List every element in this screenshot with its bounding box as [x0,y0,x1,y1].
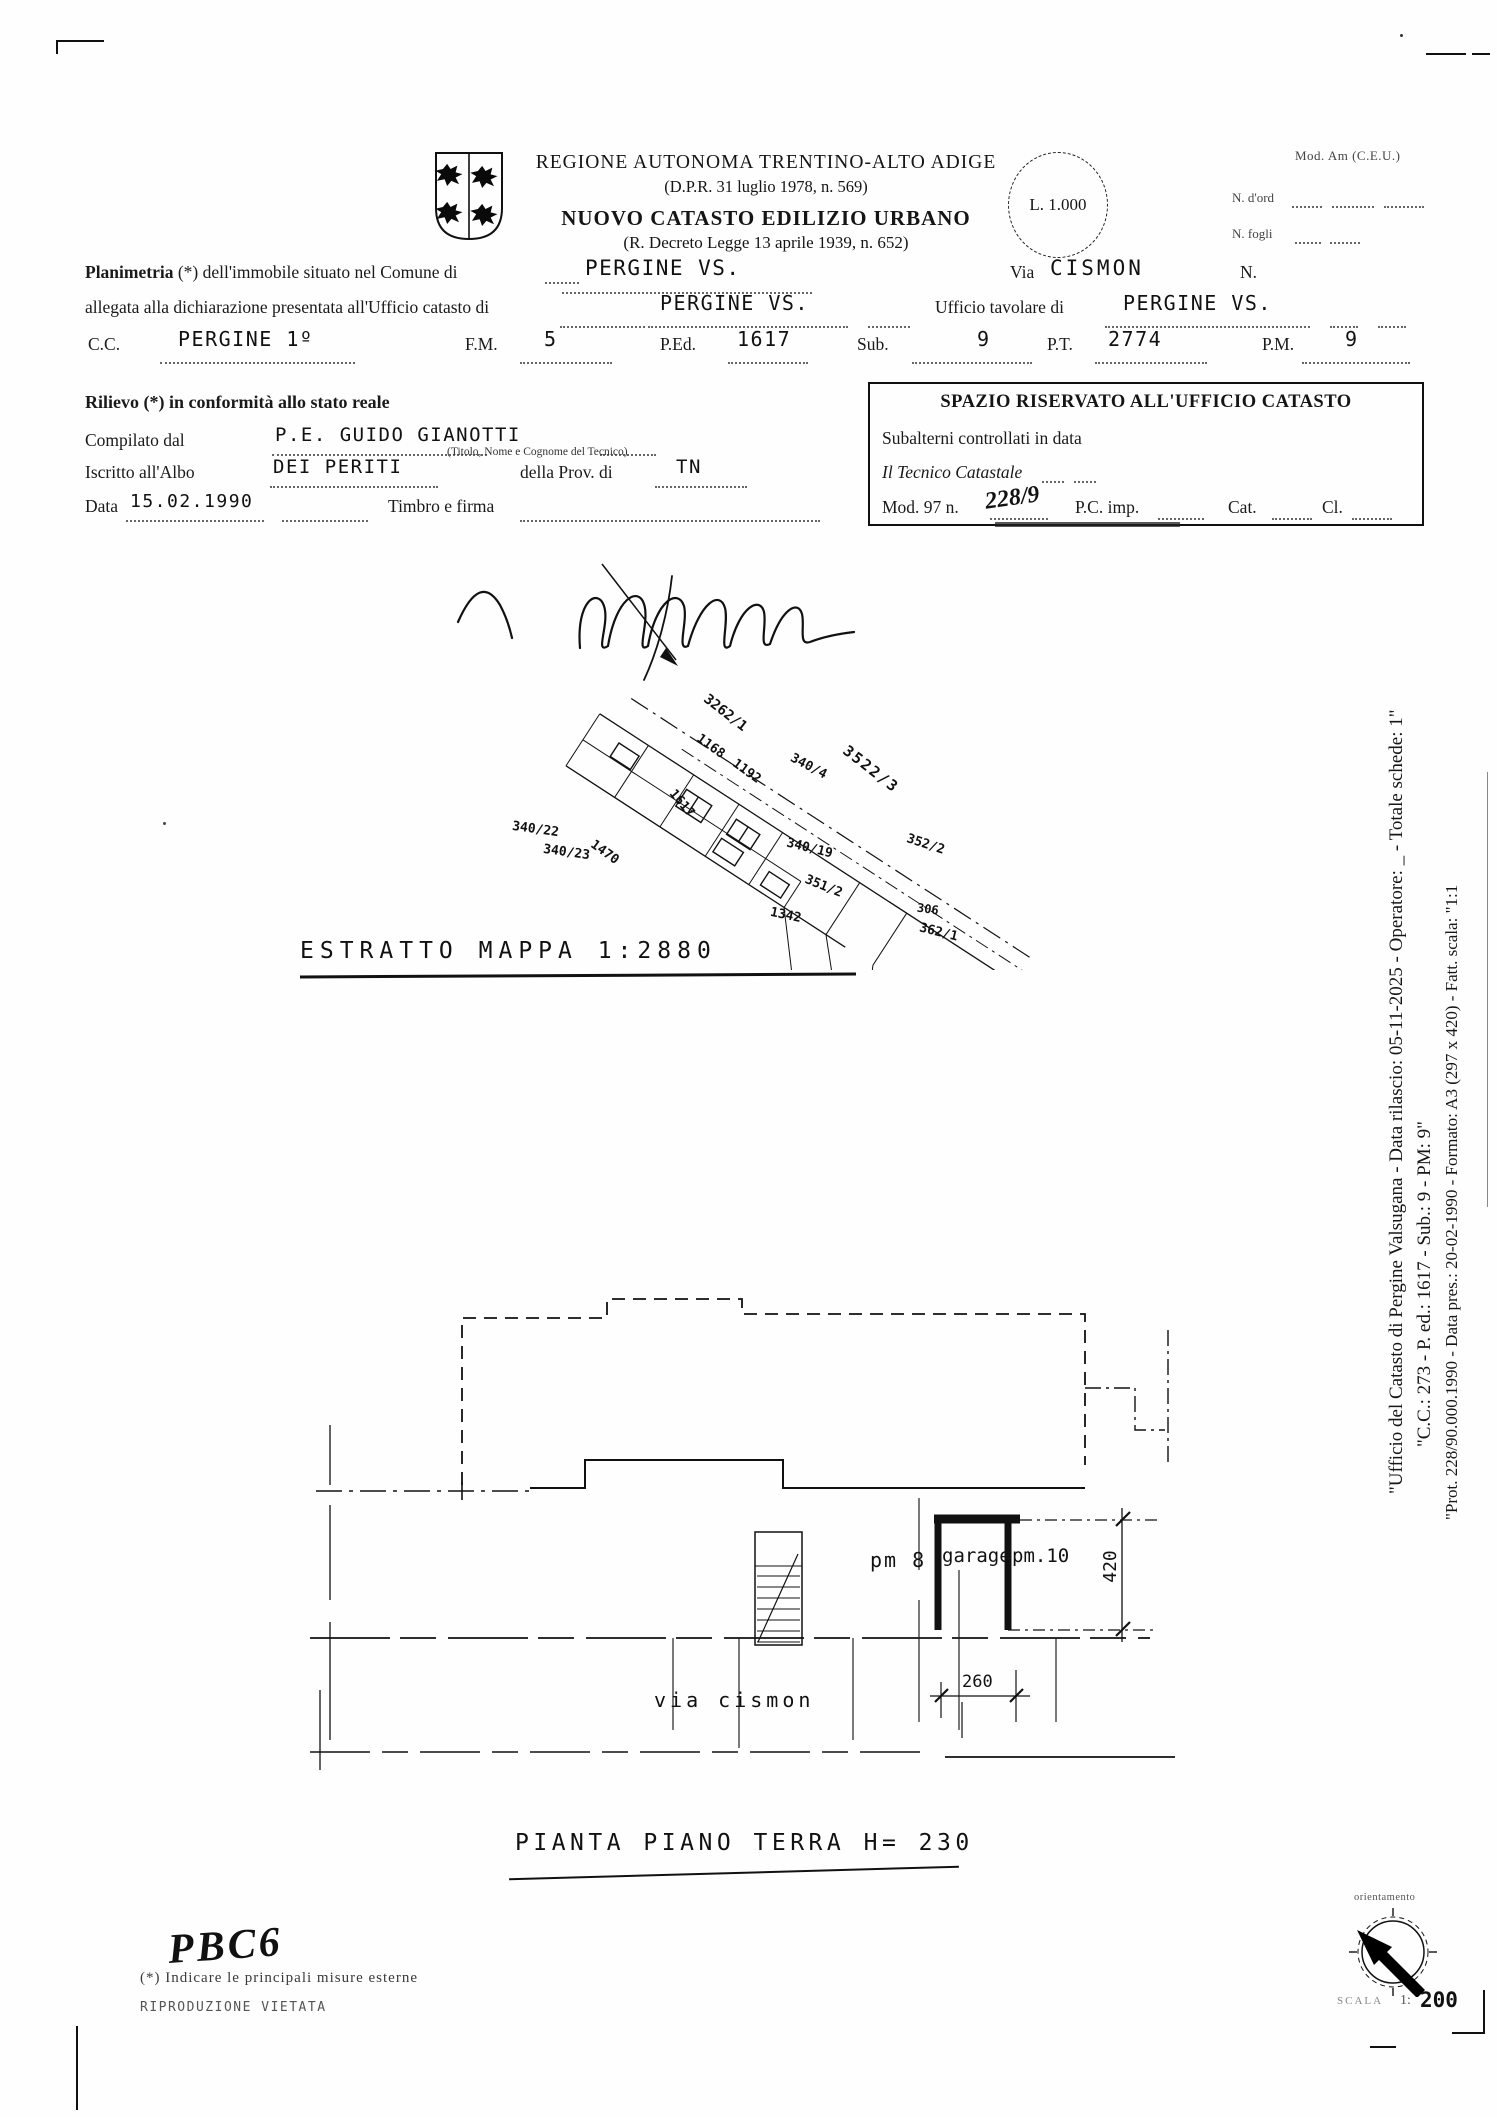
plan-label-pm8: pm 8 [870,1548,926,1572]
dotted-leader [655,484,747,488]
compilato-label: Compilato dal [85,430,185,451]
sub-label: Sub. [857,334,889,355]
corner-mark-bottom-dash [1370,2046,1396,2048]
ped-value: 1617 [737,327,791,351]
data-label: Data [85,496,118,517]
corner-mark-top-left [56,40,104,54]
tavolare-value: PERGINE VS. [1123,291,1272,315]
fm-label: F.M. [465,334,498,355]
n-ord-label: N. d'ord [1232,190,1274,206]
riproduzione-label: RIPRODUZIONE VIETATA [140,2000,327,2015]
sidebar-issue-line: "Ufficio del Catasto di Pergine Valsugan… [1386,709,1408,1494]
dotted-leader [1074,479,1096,483]
dotted-leader [728,360,808,364]
mod-am-label: Mod. Am (C.E.U.) [1295,148,1401,164]
pt-label: P.T. [1047,334,1073,355]
dotted-leader [1292,204,1322,208]
dotted-leader [1378,324,1406,328]
pm-value: 9 [1345,327,1359,351]
cl-label: Cl. [1322,497,1343,518]
plan-title-underline [509,1866,959,1881]
dotted-leader [520,518,820,522]
dotted-leader [1330,240,1360,244]
planimetria-label: Planimetria [85,262,173,282]
coat-of-arms [433,150,505,242]
via-label: Via [1010,262,1034,283]
scala-label: SCALA [1337,1995,1383,2007]
corner-mark-bottom-left [76,2026,78,2110]
map-extract-drawing [440,640,1080,970]
dotted-leader [545,280,579,284]
tecnico-caption: (Titolo, Nome e Cognome del Tecnico) [447,446,628,458]
dotted-leader [520,360,612,364]
cc-value: PERGINE 1º [178,327,313,351]
corner-mark-bottom-right-h [1452,2032,1485,2034]
dotted-leader [1272,516,1312,520]
dotted-leader [912,360,1032,364]
catasto-title: NUOVO CATASTO EDILIZIO URBANO [520,206,1012,231]
header-titles: REGIONE AUTONOMA TRENTINO-ALTO ADIGE (D.… [520,152,1012,253]
corner-mark-top-right-2 [1472,53,1490,55]
tecnico-catastale-label: Il Tecnico Catastale [882,462,1022,483]
right-margin-line [1487,772,1488,1207]
n-civico-label: N. [1240,262,1257,283]
dotted-leader [1158,516,1204,520]
scala-sep: 1: [1400,1993,1411,2009]
rilievo-title: Rilievo (*) in conformità allo stato rea… [85,392,390,413]
dotted-leader [1295,240,1321,244]
tavolare-label: Ufficio tavolare di [935,297,1064,318]
dotted-leader [1302,360,1410,364]
dotted-leader [560,324,645,328]
dotted-leader [126,518,264,522]
prov-label: della Prov. di [520,462,613,483]
albo-label: Iscritto all'Albo [85,462,195,483]
fm-value: 5 [544,327,558,351]
sidebar-protocol-line: "Prot. 228/90.000.1990 - Data pres.: 20-… [1442,885,1462,1520]
dotted-leader [1042,479,1064,483]
estratto-mappa-title: ESTRATTO MAPPA 1:2880 [300,938,717,964]
artifact-dot-2 [163,822,166,825]
sidebar-reference-line: "C.C.: 273 - P. ed.: 1617 - Sub.: 9 - PM… [1414,1121,1436,1447]
estratto-mappa-underline [300,973,856,978]
subalterni-label: Subalterni controllati in data [882,428,1082,449]
dotted-leader [868,324,910,328]
timbro-label: Timbro e firma [388,496,494,517]
plan-label-pm10: pm.10 [1012,1545,1069,1567]
plan-dim-420: 420 [1100,1550,1121,1583]
catasto-subtitle: (R. Decreto Legge 13 aprile 1939, n. 652… [520,233,1012,253]
n-fogli-label: N. fogli [1232,226,1272,242]
sub-value: 9 [977,327,991,351]
cc-label: C.C. [88,334,120,355]
corner-mark-top-right [1426,53,1466,55]
cat-label: Cat. [1228,497,1257,518]
pc-imp-label: P.C. imp. [1075,497,1139,518]
ink-smudge [995,522,1180,527]
dotted-leader [1095,360,1207,364]
row2-label: allegata alla dichiarazione presentata a… [85,297,489,318]
row1-label-rest: (*) dell'immobile situato nel Comune di [173,262,457,282]
region-title: REGIONE AUTONOMA TRENTINO-ALTO ADIGE [520,152,1012,174]
pt-value: 2774 [1108,327,1162,351]
revenue-stamp: L. 1.000 [1008,152,1108,258]
mod97-label: Mod. 97 n. [882,497,959,518]
handwritten-code: PBC6 [166,1918,284,1974]
plan-dim-260: 260 [962,1672,993,1692]
dotted-leader [1352,516,1392,520]
document-page: REGIONE AUTONOMA TRENTINO-ALTO ADIGE (D.… [0,0,1497,2117]
compilato-value: P.E. GUIDO GIANOTTI [275,424,521,446]
row1-label: Planimetria (*) dell'immobile situato ne… [85,262,458,283]
dotted-leader [270,484,438,488]
dotted-leader [160,360,355,364]
stamp-value: L. 1.000 [1029,195,1086,215]
dotted-leader [1332,204,1374,208]
prov-value: TN [676,456,702,478]
parcel-label: 306 [916,901,939,918]
catasto-di-value: PERGINE VS. [660,291,809,315]
street-label: via cismon [654,1688,814,1712]
compass-icon [1335,1902,1455,1997]
ufficio-box-title: SPAZIO RISERVATO ALL'UFFICIO CATASTO [870,392,1422,413]
pm-label: P.M. [1262,334,1294,355]
ped-label: P.Ed. [660,334,696,355]
data-value: 15.02.1990 [130,491,253,512]
region-subtitle: (D.P.R. 31 luglio 1978, n. 569) [520,177,1012,197]
dotted-leader [990,516,1048,520]
plan-title: PIANTA PIANO TERRA H= 230 [515,1830,974,1856]
dotted-leader [1384,204,1424,208]
note-misure: (*) Indicare le principali misure estern… [140,1970,418,1987]
scala-value: 200 [1420,1988,1458,2012]
corner-mark-bottom-right-v [1483,1990,1485,2034]
plan-label-garage: garage [942,1545,1011,1567]
dotted-leader [282,518,368,522]
comune-value: PERGINE VS. [585,256,741,280]
artifact-dot [1400,34,1403,37]
albo-value: DEI PERITI [273,456,402,478]
via-value: CISMON [1050,256,1144,280]
